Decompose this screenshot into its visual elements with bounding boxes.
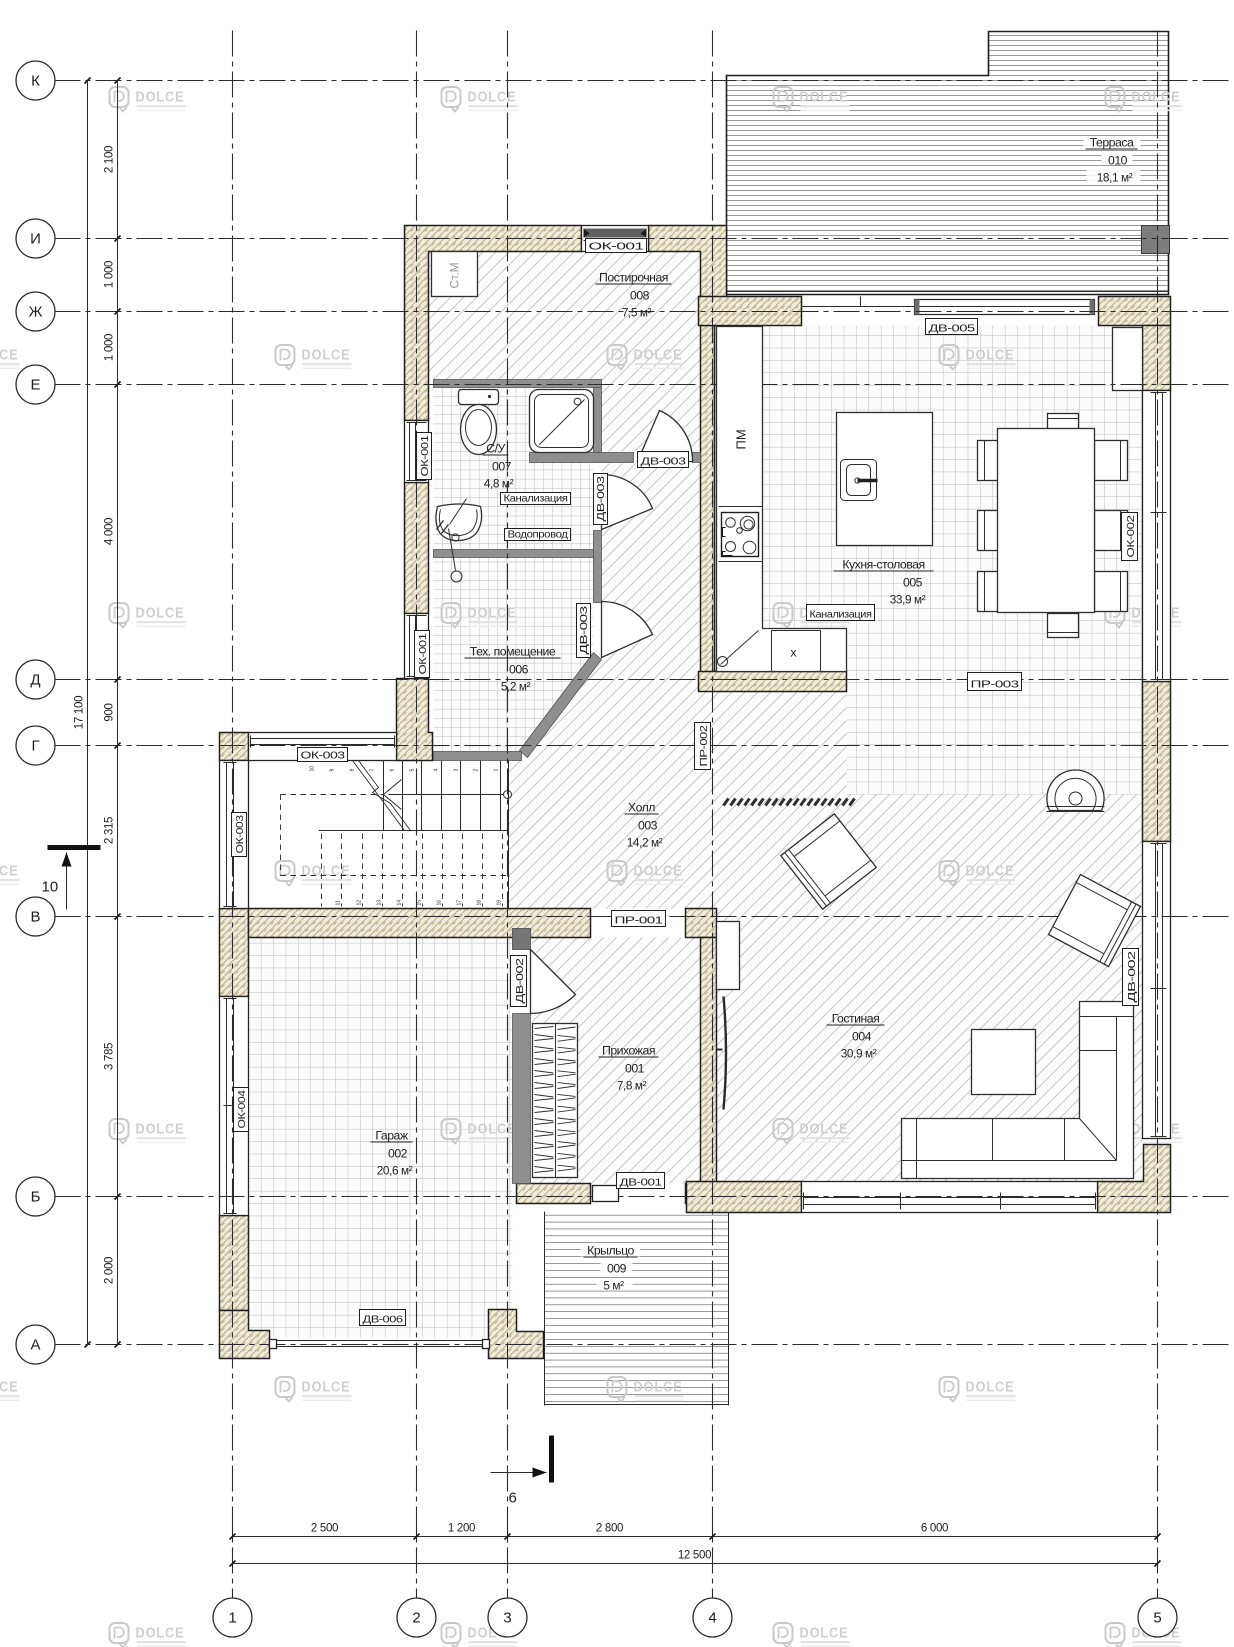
svg-text:5,2 м²: 5,2 м²: [501, 680, 531, 694]
svg-text:33,9 м²: 33,9 м²: [890, 593, 926, 607]
svg-text:17 100: 17 100: [74, 696, 86, 729]
svg-text:ПР-002: ПР-002: [698, 725, 710, 767]
svg-text:ПР-003: ПР-003: [971, 678, 1020, 690]
svg-text:7: 7: [370, 769, 376, 772]
svg-text:005: 005: [903, 576, 923, 590]
svg-text:004: 004: [852, 1030, 872, 1044]
svg-text:4,8 м²: 4,8 м²: [484, 477, 514, 491]
svg-text:002: 002: [388, 1147, 408, 1161]
svg-text:Ж: Ж: [29, 304, 43, 321]
svg-text:Б: Б: [31, 1189, 41, 1206]
svg-text:9: 9: [330, 769, 336, 772]
svg-text:ПР-001: ПР-001: [615, 914, 664, 926]
svg-text:Г: Г: [31, 738, 39, 755]
svg-text:Канализация: Канализация: [504, 492, 568, 504]
svg-text:6: 6: [390, 769, 396, 772]
svg-text:1: 1: [494, 769, 500, 772]
svg-text:3: 3: [503, 1610, 511, 1627]
svg-text:Крыльцо: Крыльцо: [587, 1244, 634, 1258]
svg-text:5: 5: [410, 769, 416, 772]
svg-text:Терраса: Терраса: [1090, 136, 1134, 150]
svg-text:ОК-004: ОК-004: [236, 1090, 248, 1129]
svg-text:12: 12: [357, 900, 363, 906]
svg-text:13: 13: [377, 900, 383, 906]
svg-text:30,9 м²: 30,9 м²: [841, 1047, 877, 1061]
svg-text:1: 1: [228, 1610, 236, 1627]
svg-text:14: 14: [397, 900, 403, 906]
svg-text:14,2 м²: 14,2 м²: [627, 836, 663, 850]
svg-text:А: А: [30, 1337, 40, 1354]
svg-text:007: 007: [492, 460, 512, 474]
svg-text:ДВ-001: ДВ-001: [620, 1176, 663, 1188]
svg-text:Гараж: Гараж: [375, 1129, 408, 1143]
svg-text:Гостиная: Гостиная: [832, 1012, 880, 1026]
svg-text:ОК-003: ОК-003: [234, 815, 246, 854]
svg-text:Е: Е: [30, 377, 40, 394]
svg-text:Ст.М: Ст.М: [448, 262, 462, 288]
svg-text:Прихожая: Прихожая: [602, 1044, 655, 1058]
svg-text:Кухня-столовая: Кухня-столовая: [842, 558, 924, 572]
svg-text:5 м²: 5 м²: [603, 1279, 624, 1293]
svg-text:16: 16: [437, 900, 443, 906]
svg-text:2: 2: [474, 769, 480, 772]
svg-text:1 000: 1 000: [104, 261, 116, 288]
svg-text:Канализация: Канализация: [810, 608, 872, 620]
svg-text:ОК-001: ОК-001: [417, 633, 429, 675]
svg-text:2 100: 2 100: [104, 146, 116, 173]
svg-text:ОК-001: ОК-001: [419, 435, 431, 477]
svg-text:1 000: 1 000: [104, 334, 116, 361]
svg-text:4: 4: [708, 1610, 716, 1627]
svg-text:ДВ-003: ДВ-003: [595, 476, 607, 522]
svg-text:009: 009: [607, 1262, 627, 1276]
svg-text:20,6 м²: 20,6 м²: [377, 1164, 413, 1178]
svg-text:7,5 м²: 7,5 м²: [622, 306, 652, 320]
svg-text:Постирочная: Постирочная: [599, 271, 668, 285]
svg-text:С/У: С/У: [486, 442, 505, 456]
svg-text:6 000: 6 000: [921, 1523, 948, 1535]
svg-text:ДВ-002: ДВ-002: [1126, 951, 1138, 1003]
svg-text:И: И: [30, 231, 41, 248]
svg-text:11: 11: [336, 900, 342, 905]
svg-text:10: 10: [310, 766, 316, 772]
svg-text:006: 006: [509, 663, 529, 677]
svg-text:Тех. помещение: Тех. помещение: [470, 645, 556, 659]
svg-text:15: 15: [417, 900, 423, 906]
svg-text:4: 4: [434, 769, 440, 772]
svg-text:2: 2: [412, 1610, 420, 1627]
svg-text:2 800: 2 800: [596, 1523, 623, 1535]
svg-text:900: 900: [104, 703, 116, 721]
svg-text:2 000: 2 000: [104, 1257, 116, 1284]
svg-text:ДВ-006: ДВ-006: [363, 1313, 404, 1325]
svg-text:12 500: 12 500: [678, 1550, 711, 1562]
svg-text:6: 6: [509, 1490, 517, 1507]
svg-text:3 785: 3 785: [104, 1043, 116, 1070]
svg-text:ДВ-003: ДВ-003: [641, 455, 687, 467]
svg-text:1 200: 1 200: [448, 1523, 475, 1535]
svg-text:ПМ: ПМ: [734, 429, 749, 449]
svg-text:ДВ-002: ДВ-002: [514, 958, 526, 1004]
svg-text:В: В: [30, 909, 40, 926]
svg-text:001: 001: [625, 1062, 645, 1076]
svg-text:К: К: [31, 73, 40, 90]
svg-text:ОК-002: ОК-002: [1125, 515, 1137, 558]
svg-text:3: 3: [454, 769, 460, 772]
svg-text:17: 17: [457, 900, 463, 906]
svg-text:4 000: 4 000: [104, 518, 116, 545]
svg-text:Водопровод: Водопровод: [508, 528, 568, 540]
svg-text:2 315: 2 315: [104, 817, 116, 844]
svg-text:18,1 м²: 18,1 м²: [1097, 171, 1133, 185]
svg-text:Холл: Холл: [628, 801, 655, 815]
svg-text:8: 8: [350, 769, 356, 772]
svg-text:2 500: 2 500: [311, 1523, 338, 1535]
svg-text:19: 19: [497, 900, 503, 906]
svg-text:ОК-001: ОК-001: [589, 240, 645, 252]
svg-text:7,8 м²: 7,8 м²: [617, 1079, 647, 1093]
svg-text:Д: Д: [30, 672, 40, 689]
svg-text:003: 003: [638, 819, 658, 833]
svg-text:18: 18: [477, 900, 483, 906]
svg-text:x: x: [791, 646, 797, 660]
svg-text:ДВ-005: ДВ-005: [929, 322, 976, 334]
svg-text:5: 5: [1153, 1610, 1161, 1627]
svg-text:ОК-003: ОК-003: [301, 749, 346, 761]
svg-text:10: 10: [42, 879, 59, 896]
svg-text:ДВ-003: ДВ-003: [578, 606, 590, 655]
svg-text:008: 008: [630, 289, 650, 303]
svg-text:010: 010: [1108, 154, 1128, 168]
